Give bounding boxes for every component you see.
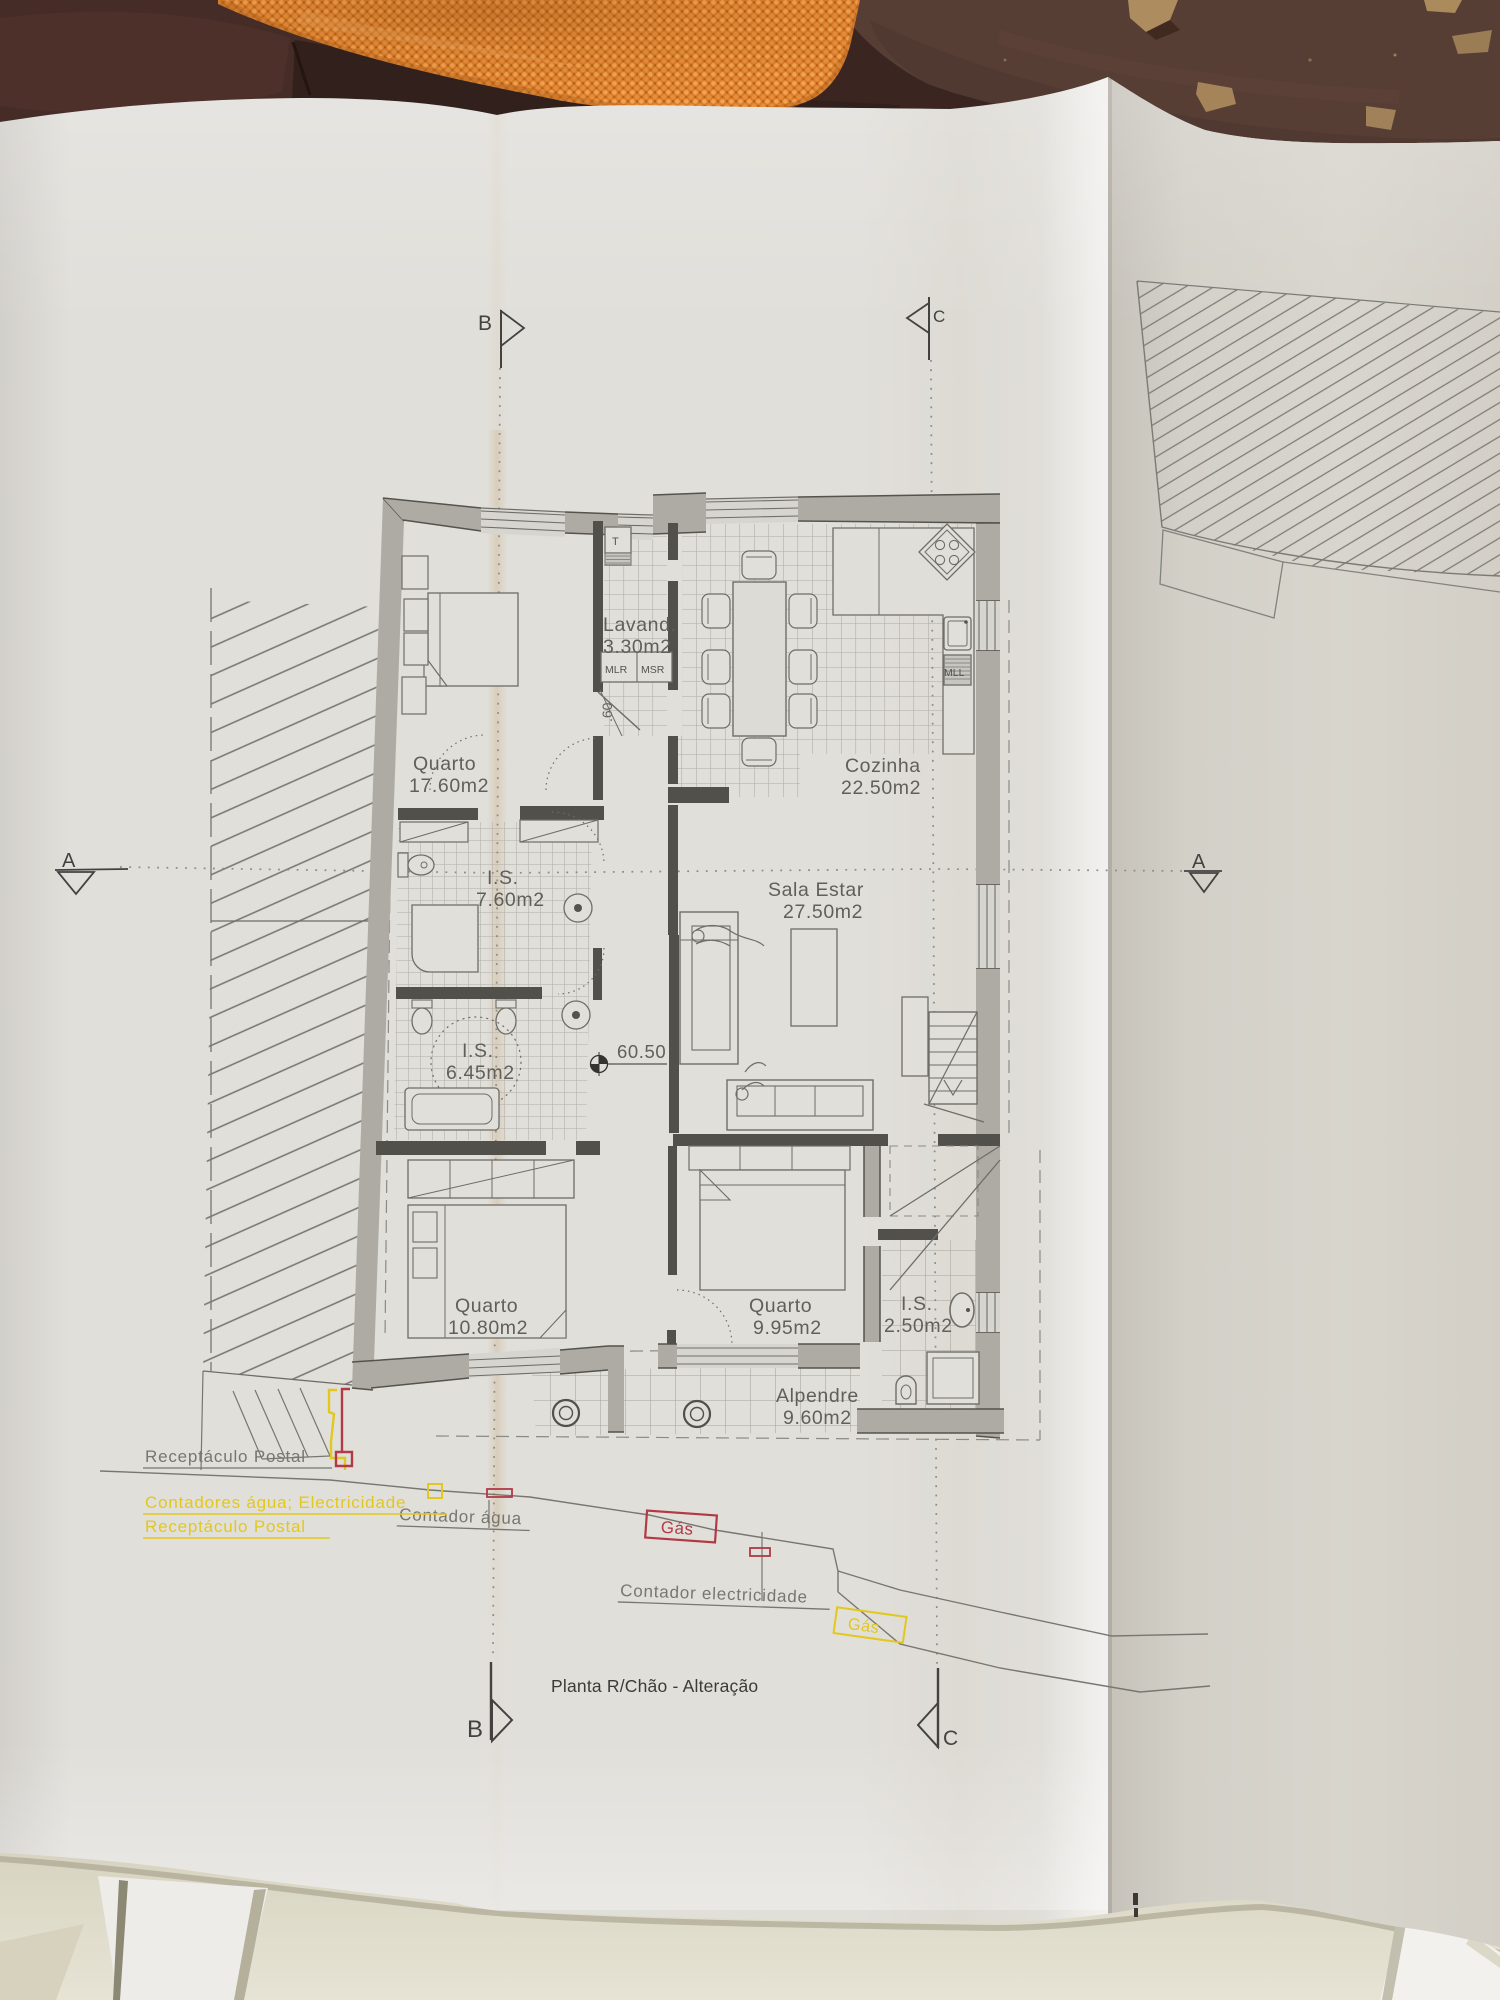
svg-text:Receptáculo Postal: Receptáculo Postal <box>145 1447 306 1466</box>
svg-text:22.50m2: 22.50m2 <box>841 777 921 799</box>
svg-text:9.60m2: 9.60m2 <box>783 1407 852 1429</box>
svg-text:B: B <box>478 312 492 335</box>
svg-text:C: C <box>933 307 945 326</box>
svg-text:Cozinha: Cozinha <box>845 755 921 777</box>
svg-text:Planta R/Chão - Alteração: Planta R/Chão - Alteração <box>551 1676 758 1696</box>
svg-text:Receptáculo Postal: Receptáculo Postal <box>145 1517 306 1536</box>
svg-text:27.50m2: 27.50m2 <box>783 901 863 923</box>
svg-text:I.S.: I.S. <box>901 1293 933 1315</box>
svg-text:A: A <box>62 850 76 872</box>
svg-text:MSR: MSR <box>641 664 665 676</box>
svg-text:Lavand.: Lavand. <box>603 614 677 636</box>
svg-text:T: T <box>612 536 619 548</box>
svg-text:Alpendre: Alpendre <box>776 1385 859 1407</box>
svg-text:MLL: MLL <box>944 667 965 679</box>
svg-text:Quarto: Quarto <box>413 753 476 775</box>
svg-text:Sala Estar: Sala Estar <box>768 879 864 901</box>
svg-text:A: A <box>1192 851 1206 873</box>
svg-text:3.30m2: 3.30m2 <box>603 636 672 658</box>
svg-text:I.S.: I.S. <box>462 1040 494 1062</box>
svg-text:B: B <box>467 1716 483 1743</box>
svg-text:MLR: MLR <box>605 664 628 676</box>
svg-text:10.80m2: 10.80m2 <box>448 1317 528 1339</box>
svg-text:Contadores água; Electricidade: Contadores água; Electricidade <box>145 1493 406 1512</box>
svg-text:C: C <box>943 1727 958 1750</box>
svg-text:7.60m2: 7.60m2 <box>476 889 545 911</box>
svg-text:17.60m2: 17.60m2 <box>409 775 489 797</box>
svg-text:9.95m2: 9.95m2 <box>753 1317 822 1339</box>
svg-text:2.50m2: 2.50m2 <box>884 1315 953 1337</box>
svg-text:Gás: Gás <box>660 1518 694 1539</box>
svg-text:Quarto: Quarto <box>455 1295 518 1317</box>
svg-text:6.45m2: 6.45m2 <box>446 1062 515 1084</box>
svg-text:I.S.: I.S. <box>487 867 519 889</box>
svg-text:60.50: 60.50 <box>617 1041 666 1062</box>
svg-text:Quarto: Quarto <box>749 1295 812 1317</box>
